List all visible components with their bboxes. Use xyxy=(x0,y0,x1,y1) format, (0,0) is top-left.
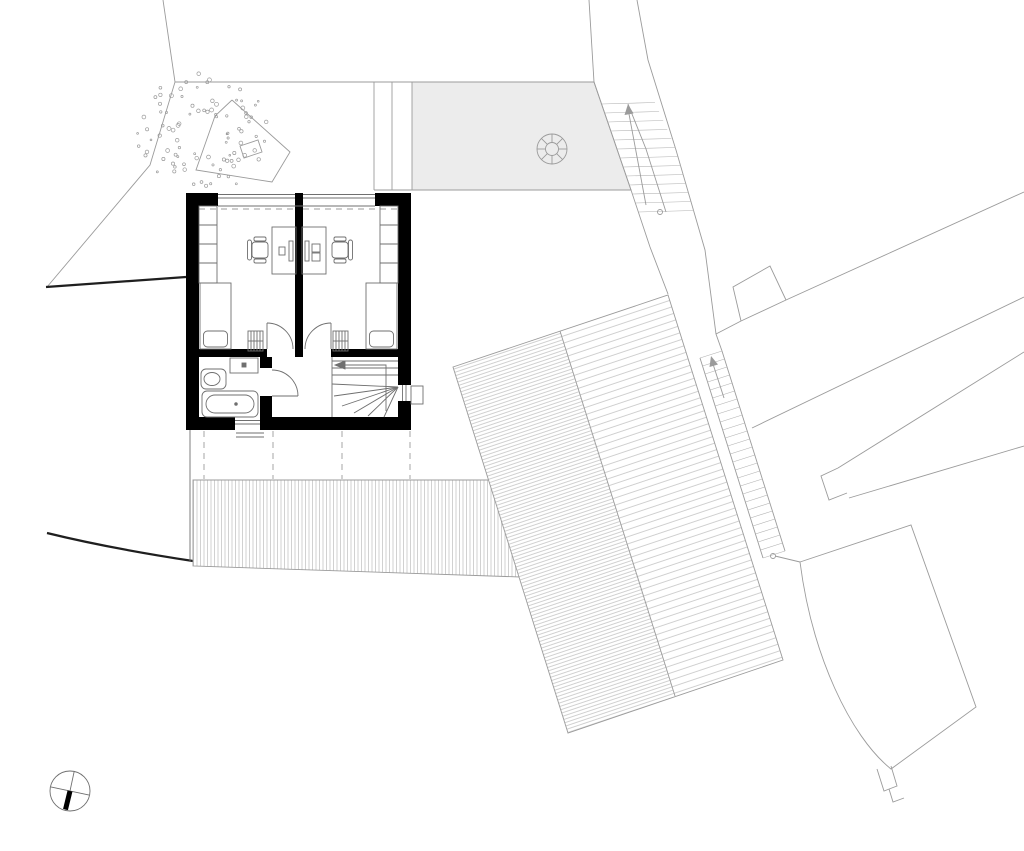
tree-dot xyxy=(238,127,241,130)
site-boundary-west-upper xyxy=(46,277,186,287)
tree-dot xyxy=(239,88,242,91)
tree-dot xyxy=(211,99,215,103)
tree-dot xyxy=(183,163,186,166)
radiator-left xyxy=(248,331,263,351)
tree-dot xyxy=(241,100,243,102)
roof-projection-lines xyxy=(204,431,410,479)
wall-south-east xyxy=(265,417,411,430)
tree-dot xyxy=(200,181,203,184)
tree-dot xyxy=(205,184,208,187)
neighbour2-edge-upper xyxy=(838,352,1024,468)
tree-dot xyxy=(233,151,236,154)
tree-dot xyxy=(174,153,177,156)
tree-dot xyxy=(226,159,229,162)
tree-dot xyxy=(154,96,157,99)
tree-dot xyxy=(173,170,176,173)
parcel-link-line xyxy=(775,556,800,562)
parcel-step-lines xyxy=(889,789,904,802)
wall-west xyxy=(186,193,199,430)
wc xyxy=(201,369,226,389)
stair-tread xyxy=(763,551,785,558)
stair-tread xyxy=(750,511,772,518)
tree-dot xyxy=(177,156,179,158)
tree-bench xyxy=(240,140,262,158)
tree-dot xyxy=(144,154,147,157)
bathtub xyxy=(202,391,258,417)
door-bedroom-right xyxy=(305,323,331,349)
tree-dot xyxy=(217,175,220,178)
roofs xyxy=(193,295,785,733)
wall-bath-divider-top xyxy=(260,357,272,368)
tree-dot xyxy=(236,99,238,101)
floor-plan-page xyxy=(0,0,1024,851)
tree-dot xyxy=(212,164,214,166)
tree-dot xyxy=(158,102,161,105)
winder-fan xyxy=(332,384,398,417)
tree-dot xyxy=(228,86,230,88)
tree-dot xyxy=(207,78,211,82)
stair-tread xyxy=(743,487,765,494)
neighbour-parcel xyxy=(775,525,976,802)
tree-dot xyxy=(165,111,167,113)
wardrobe-right xyxy=(380,206,398,283)
terrace-surface xyxy=(412,82,631,190)
tree-dot xyxy=(210,183,212,185)
stair-tread xyxy=(735,463,757,470)
tree-dot xyxy=(156,171,158,173)
tree-dot xyxy=(166,149,170,153)
tree-dot xyxy=(150,139,152,141)
neighbour2-edge-lower xyxy=(849,446,1024,498)
tree-dot xyxy=(219,169,221,171)
tree-dot xyxy=(191,104,194,107)
tree-dot xyxy=(197,109,201,113)
washbasin-counter xyxy=(230,358,258,373)
tree-dot xyxy=(160,111,162,113)
bed-left xyxy=(200,283,231,349)
tree-dot xyxy=(226,115,228,117)
wall-bath-divider-bottom xyxy=(260,396,272,430)
stair-center-rail xyxy=(628,104,666,212)
parcel-step-notch xyxy=(877,766,897,791)
tree-dot xyxy=(245,115,249,119)
stair-tread xyxy=(755,527,777,534)
door-bedroom-left xyxy=(267,323,293,349)
stair-tread xyxy=(745,495,767,502)
side-stair-arrow-shaft xyxy=(713,364,724,398)
winder-stair xyxy=(332,361,398,417)
wall-center-spine xyxy=(295,193,303,357)
tree-dot xyxy=(137,133,139,135)
tree-dot xyxy=(232,164,236,168)
terrace xyxy=(374,82,631,190)
tree-dot xyxy=(178,146,180,148)
tree-dot xyxy=(215,102,219,106)
stair-tread xyxy=(753,519,775,526)
door-bathroom xyxy=(272,370,298,396)
neighbour-building-lower xyxy=(821,352,1024,500)
neighbour2-notch xyxy=(821,468,847,500)
stair-tread xyxy=(723,423,745,430)
floor-plan-canvas xyxy=(0,0,1024,851)
stair-tread xyxy=(761,543,783,550)
pitched-roof xyxy=(453,295,783,733)
north-arrow xyxy=(50,771,90,811)
parcel-outline xyxy=(800,525,976,769)
stair-tread xyxy=(748,503,770,510)
tree-dot xyxy=(235,183,237,185)
tree-dot xyxy=(171,162,174,165)
tree-dot xyxy=(237,158,241,162)
tree-dot xyxy=(253,149,257,153)
lower-roof xyxy=(193,480,520,577)
tree-dot xyxy=(229,154,231,156)
compass-needle xyxy=(66,791,71,810)
radiator-right xyxy=(333,331,348,351)
tree-dot xyxy=(194,153,196,155)
office-chair-left xyxy=(248,237,269,263)
stair-start-marker xyxy=(658,210,663,215)
windows xyxy=(218,195,423,438)
desk-left xyxy=(272,227,296,274)
tree-dot xyxy=(181,95,183,97)
tree-dot xyxy=(183,168,187,172)
wardrobe-left xyxy=(199,206,217,283)
tree-dot xyxy=(264,120,268,124)
tree-dot xyxy=(227,137,229,139)
stair-tread xyxy=(730,447,752,454)
tree-dot xyxy=(239,141,243,145)
tree-dot xyxy=(145,150,149,154)
neighbour-edge-lower xyxy=(752,297,1024,428)
office-chair-right xyxy=(332,237,353,263)
tree-dot xyxy=(225,141,227,143)
tree-canopy-stipple xyxy=(137,72,268,188)
tree-dot xyxy=(196,86,198,88)
tree-dot xyxy=(162,157,165,160)
tree-dot xyxy=(248,121,250,123)
site-boundary-northwest xyxy=(47,0,175,287)
tree-dot xyxy=(195,156,199,160)
bed-right xyxy=(366,283,397,349)
tree-dot xyxy=(207,155,211,159)
tree-dot xyxy=(222,158,225,161)
stair-tread xyxy=(720,415,742,422)
tree-under-structure xyxy=(196,100,290,182)
stair-tread xyxy=(738,471,760,478)
tree-dot xyxy=(192,183,195,186)
tree-dot xyxy=(254,104,256,106)
tree-dot xyxy=(257,100,259,102)
tree-dot xyxy=(230,159,233,162)
tree-dot xyxy=(197,72,201,76)
tree-dot xyxy=(167,127,171,131)
tree-dot xyxy=(137,145,140,148)
bathroom xyxy=(201,358,258,417)
stair-tread xyxy=(733,455,755,462)
tree-dot xyxy=(175,138,179,142)
garden-tree xyxy=(137,72,290,188)
stair-tread xyxy=(740,479,762,486)
tree-dot xyxy=(159,93,162,96)
stair-tread xyxy=(728,439,750,446)
tree-dot xyxy=(142,115,146,119)
desk-right xyxy=(302,227,326,274)
bedroom-right xyxy=(302,206,398,351)
side-stair-end-marker xyxy=(771,554,776,559)
stair-tread xyxy=(715,399,737,406)
tree-dot xyxy=(179,87,183,91)
neighbour-building-upper xyxy=(716,192,1024,428)
stair-tread xyxy=(725,431,747,438)
tree-dot xyxy=(210,108,214,112)
lower-roof-surface xyxy=(193,480,520,577)
stair-tread xyxy=(718,407,740,414)
tree-dot xyxy=(255,135,257,137)
wall-hall-right xyxy=(331,349,398,357)
wall-east-upper xyxy=(398,193,411,385)
tree-dot xyxy=(203,109,206,112)
bedroom-left xyxy=(199,206,296,351)
tree-dot xyxy=(206,110,209,113)
tree-dot xyxy=(263,140,265,142)
tree-dot xyxy=(146,128,149,131)
stair-tread xyxy=(602,103,656,105)
tree-dot xyxy=(174,166,177,169)
tree-dot xyxy=(189,113,191,115)
building xyxy=(186,193,423,437)
stair-tread xyxy=(758,535,780,542)
neighbour-edge-upper xyxy=(716,192,1024,334)
tree-dot xyxy=(257,158,260,161)
wall-south-west xyxy=(186,417,235,430)
tree-dot xyxy=(171,128,175,132)
site-boundary-west-lower xyxy=(47,533,193,561)
tree-dot xyxy=(240,130,243,133)
tree-dot xyxy=(159,86,162,89)
